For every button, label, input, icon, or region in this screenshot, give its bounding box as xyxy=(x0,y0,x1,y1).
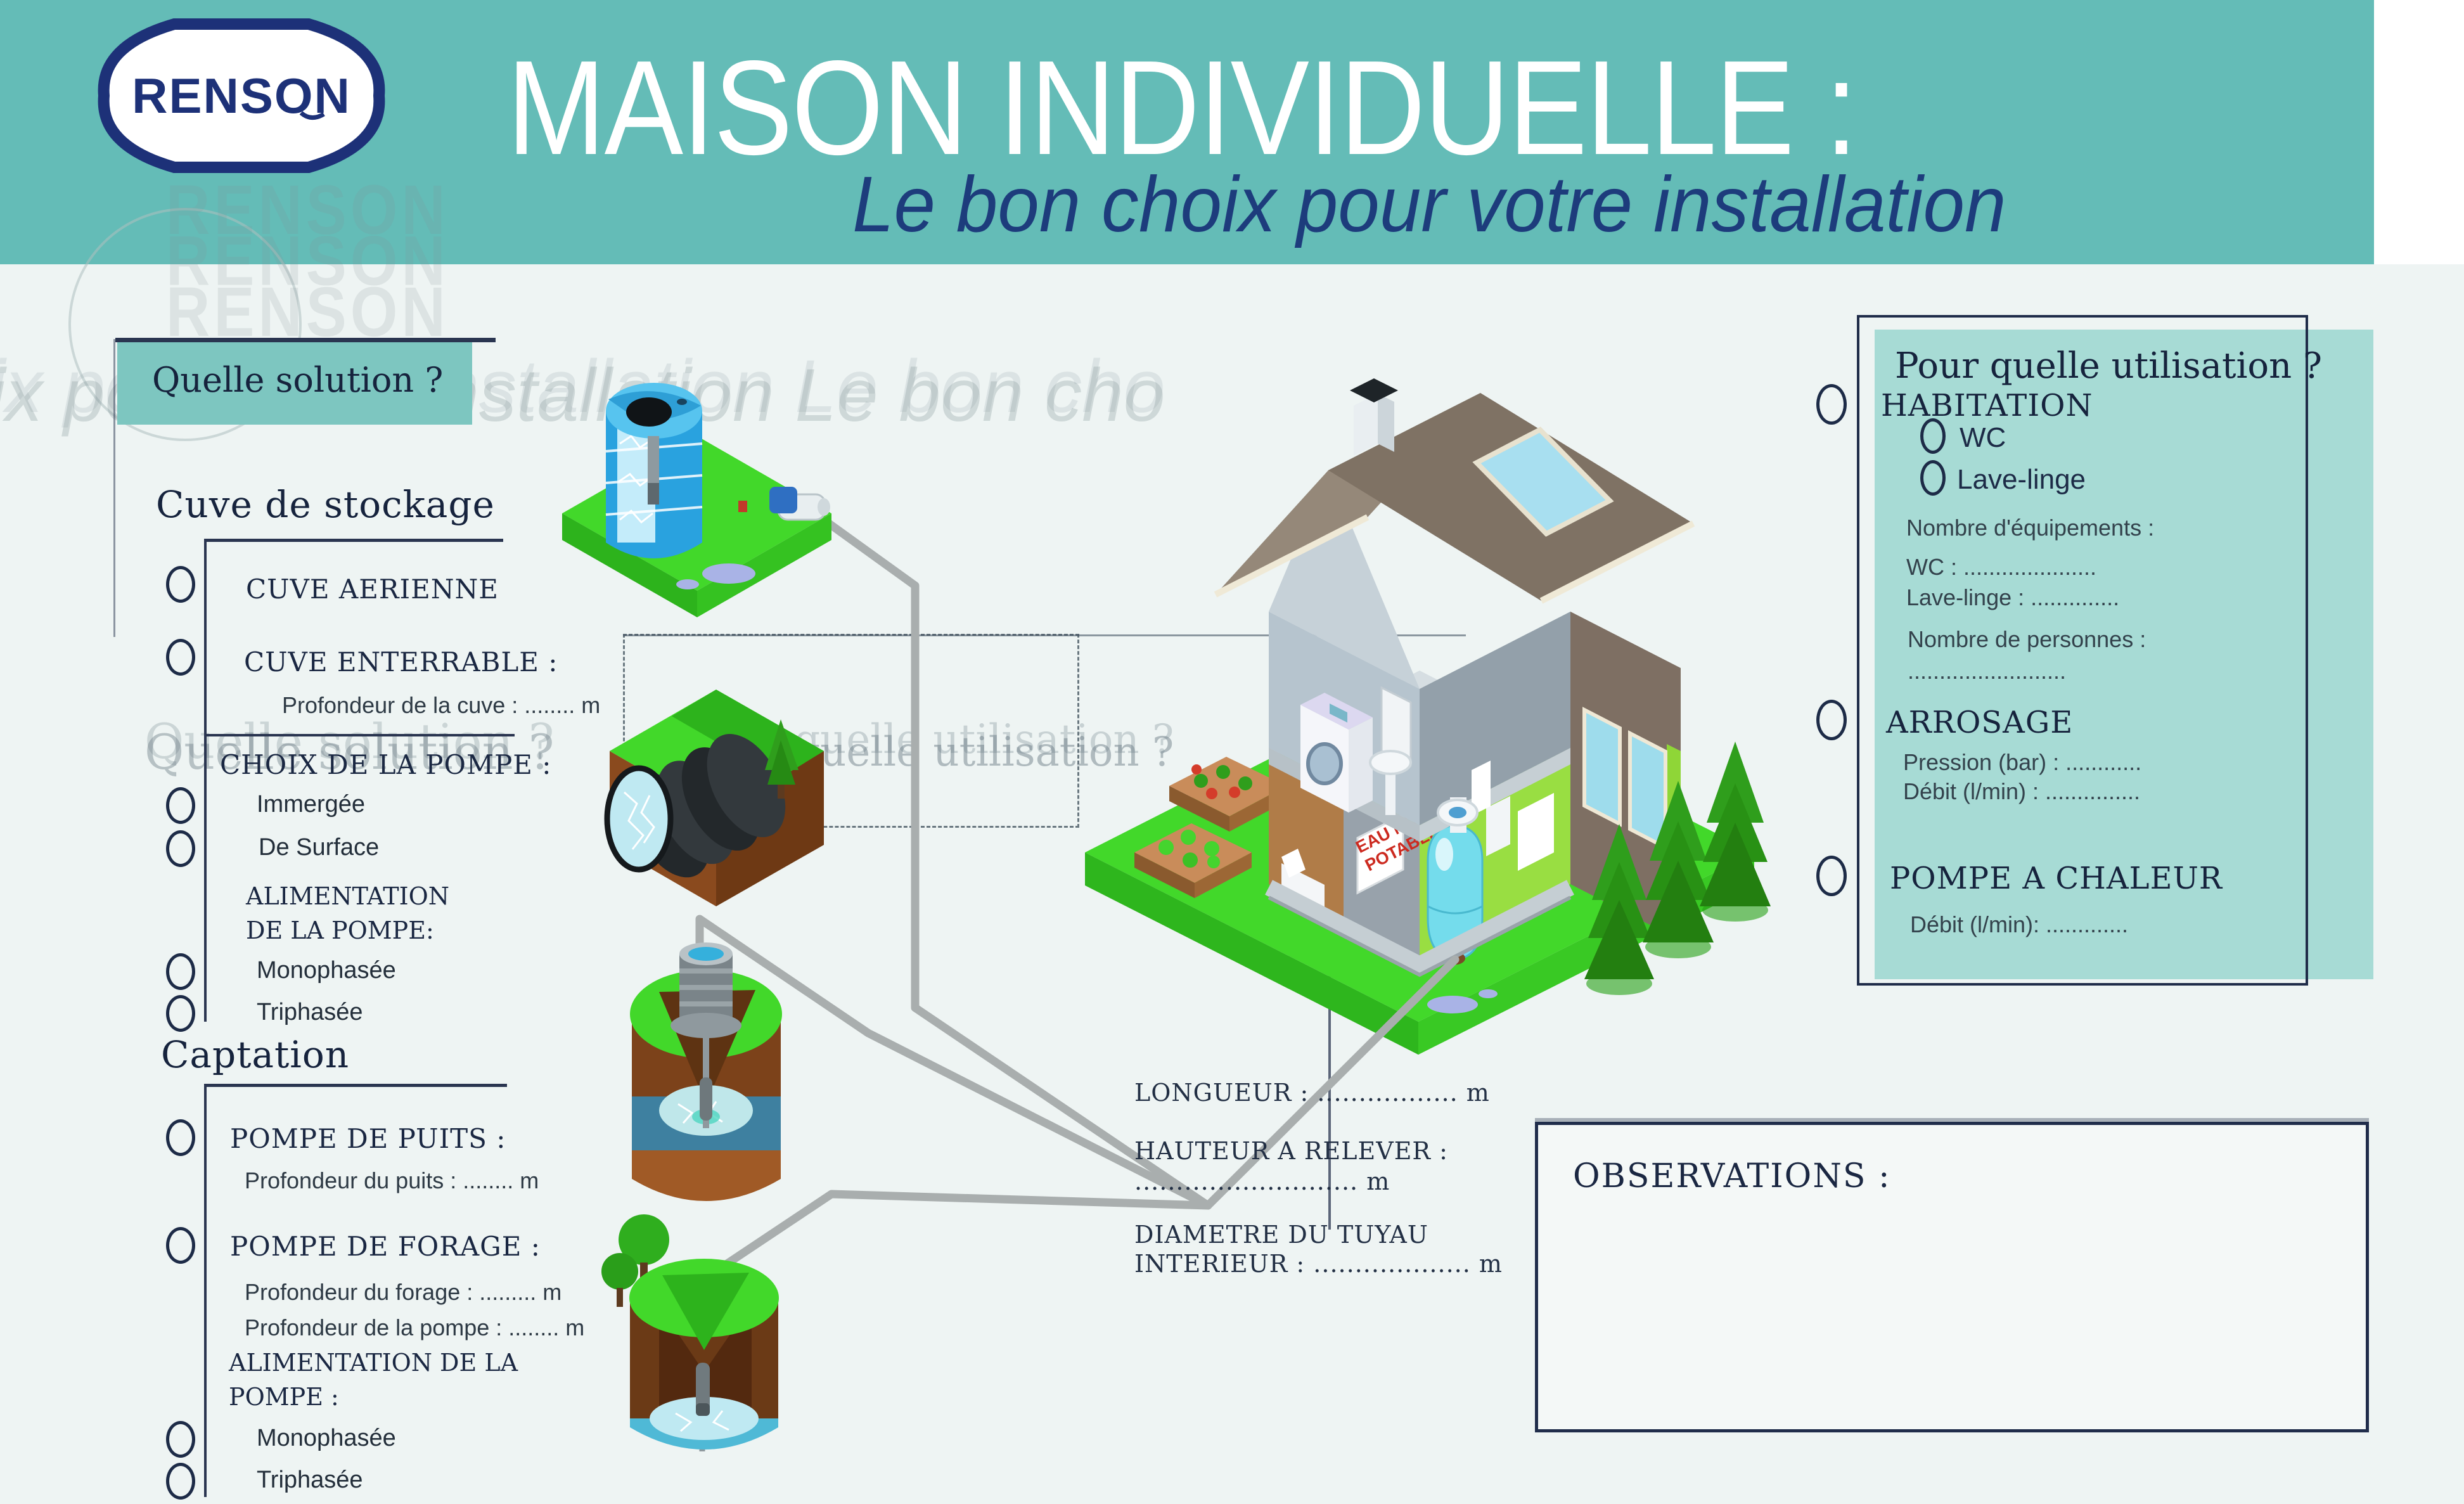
hauteur-label: HAUTEUR A RELEVER : xyxy=(1134,1137,1448,1165)
debit-line: Débit (l/min) : ............... xyxy=(1903,778,2140,805)
storage-heading: Cuve de stockage xyxy=(156,483,495,526)
storage-monophasee-label: Monophasée xyxy=(257,957,396,984)
radio-arrosage[interactable] xyxy=(1816,700,1847,740)
radio-lave-linge[interactable] xyxy=(1920,460,1946,496)
cuve-enterrable-label: CUVE ENTERRABLE : xyxy=(244,646,558,678)
radio-cuve-aerienne[interactable] xyxy=(166,566,195,603)
personnes-label: Nombre de personnes : xyxy=(1908,626,2146,653)
immergee-label: Immergée xyxy=(257,791,365,818)
solution-box-label: Quelle solution ? xyxy=(152,360,443,400)
above-ground-tank-illustration xyxy=(562,383,831,617)
pump-choice-label: CHOIX DE LA POMPE : xyxy=(220,749,551,780)
observations-label: OBSERVATIONS : xyxy=(1573,1157,1890,1195)
radio-storage-triphasee[interactable] xyxy=(166,995,195,1032)
wc-count-line: WC : ..................... xyxy=(1906,554,2096,581)
radio-cuve-enterrable[interactable] xyxy=(166,639,195,676)
storage-alim-label-1: ALIMENTATION xyxy=(246,882,449,910)
radio-de-surface[interactable] xyxy=(166,830,195,867)
solution-box-topline xyxy=(115,338,496,342)
radio-pompe-de-puits[interactable] xyxy=(166,1119,195,1156)
pac-debit-line: Débit (l/min): ............. xyxy=(1910,911,2128,938)
lave-linge-count-line: Lave-linge : .............. xyxy=(1906,584,2119,611)
pompe-puits-sub: Profondeur du puits : ........ m xyxy=(245,1167,539,1194)
well-illustration xyxy=(630,942,782,1201)
diametre-label-1: DIAMETRE DU TUYAU xyxy=(1134,1221,1428,1249)
captation-monophasee-label: Monophasée xyxy=(257,1425,396,1452)
buried-tank-illustration xyxy=(607,690,824,906)
usage-panel-title: Pour quelle utilisation ? xyxy=(1895,345,2300,387)
storage-topline xyxy=(204,539,503,542)
radio-habitation[interactable] xyxy=(1816,384,1847,425)
equip-count-label: Nombre d'équipements : xyxy=(1906,515,2154,541)
radio-captation-triphasee[interactable] xyxy=(166,1463,195,1500)
pompe-a-chaleur-label: POMPE A CHALEUR xyxy=(1890,861,2223,896)
radio-wc[interactable] xyxy=(1920,418,1946,454)
house-illustration: EAU NON POTABLE xyxy=(1085,378,1771,1055)
radio-storage-monophasee[interactable] xyxy=(166,953,195,990)
lave-linge-label: Lave-linge xyxy=(1957,464,2086,496)
cuve-enterrable-sub: Profondeur de la cuve : ........ m xyxy=(282,692,600,719)
longueur-label: LONGUEUR : ................. m xyxy=(1134,1079,1490,1107)
radio-captation-monophasee[interactable] xyxy=(166,1421,195,1458)
storage-alim-label-2: DE LA POMPE: xyxy=(246,916,434,944)
captation-topline xyxy=(204,1084,507,1087)
habitation-label: HABITATION xyxy=(1881,388,2093,423)
pompe-forage-sub2: Profondeur de la pompe : ........ m xyxy=(245,1314,584,1341)
diametre-label-2: INTERIEUR : ................... m xyxy=(1134,1250,1503,1278)
storage-triphasee-label: Triphasée xyxy=(257,999,363,1026)
radio-pompe-de-forage[interactable] xyxy=(166,1227,195,1264)
wc-label: WC xyxy=(1960,422,2006,454)
pression-line: Pression (bar) : ............ xyxy=(1903,749,2141,776)
pompe-forage-sub1: Profondeur du forage : ......... m xyxy=(245,1279,561,1306)
storage-vline xyxy=(204,539,207,1022)
captation-heading: Captation xyxy=(161,1033,349,1076)
personnes-line: ......................... xyxy=(1908,658,2066,685)
captation-triphasee-label: Triphasée xyxy=(257,1467,363,1494)
pompe-forage-label: POMPE DE FORAGE : xyxy=(230,1231,541,1262)
arrosage-label: ARROSAGE xyxy=(1886,705,2073,740)
hauteur-dots: ........................... m xyxy=(1134,1167,1390,1195)
de-surface-label: De Surface xyxy=(259,834,379,861)
storage-midline xyxy=(204,734,515,736)
captation-alim-label-1: ALIMENTATION DE LA xyxy=(229,1349,518,1377)
cuve-aerienne-label: CUVE AERIENNE xyxy=(246,574,499,605)
radio-immergee[interactable] xyxy=(166,787,195,824)
captation-alim-label-2: POMPE : xyxy=(229,1383,339,1411)
radio-pompe-a-chaleur[interactable] xyxy=(1816,856,1847,896)
captation-vline xyxy=(204,1084,207,1497)
pompe-puits-label: POMPE DE PUITS : xyxy=(230,1123,506,1154)
poster-page: RENSON MAISON INDIVIDUELLE : Le bon choi… xyxy=(0,0,2464,1504)
